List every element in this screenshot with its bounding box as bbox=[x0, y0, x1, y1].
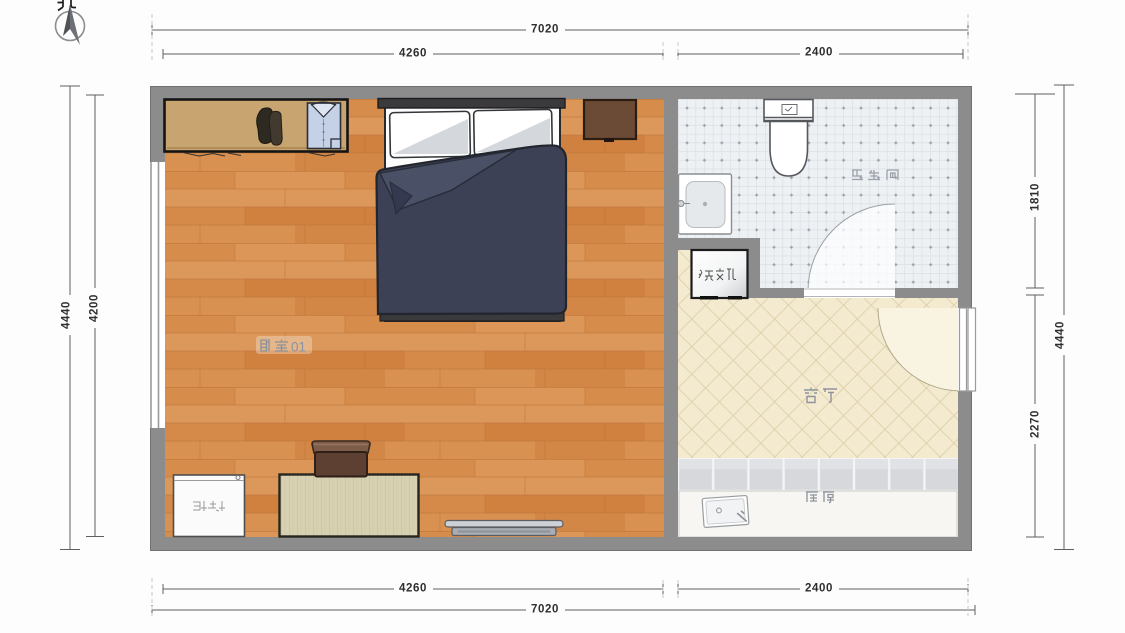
svg-text:4260: 4260 bbox=[399, 48, 427, 60]
svg-text:4200: 4200 bbox=[89, 294, 101, 322]
svg-text:7020: 7020 bbox=[531, 604, 559, 616]
svg-text:2400: 2400 bbox=[805, 583, 833, 595]
svg-text:2400: 2400 bbox=[805, 47, 833, 59]
svg-text:01: 01 bbox=[291, 340, 306, 355]
svg-text:4440: 4440 bbox=[61, 301, 73, 329]
svg-text:7020: 7020 bbox=[531, 24, 559, 36]
svg-text:1810: 1810 bbox=[1030, 183, 1042, 211]
svg-text:4440: 4440 bbox=[1055, 321, 1067, 349]
svg-text:4260: 4260 bbox=[399, 583, 427, 595]
svg-text:2270: 2270 bbox=[1030, 410, 1042, 438]
